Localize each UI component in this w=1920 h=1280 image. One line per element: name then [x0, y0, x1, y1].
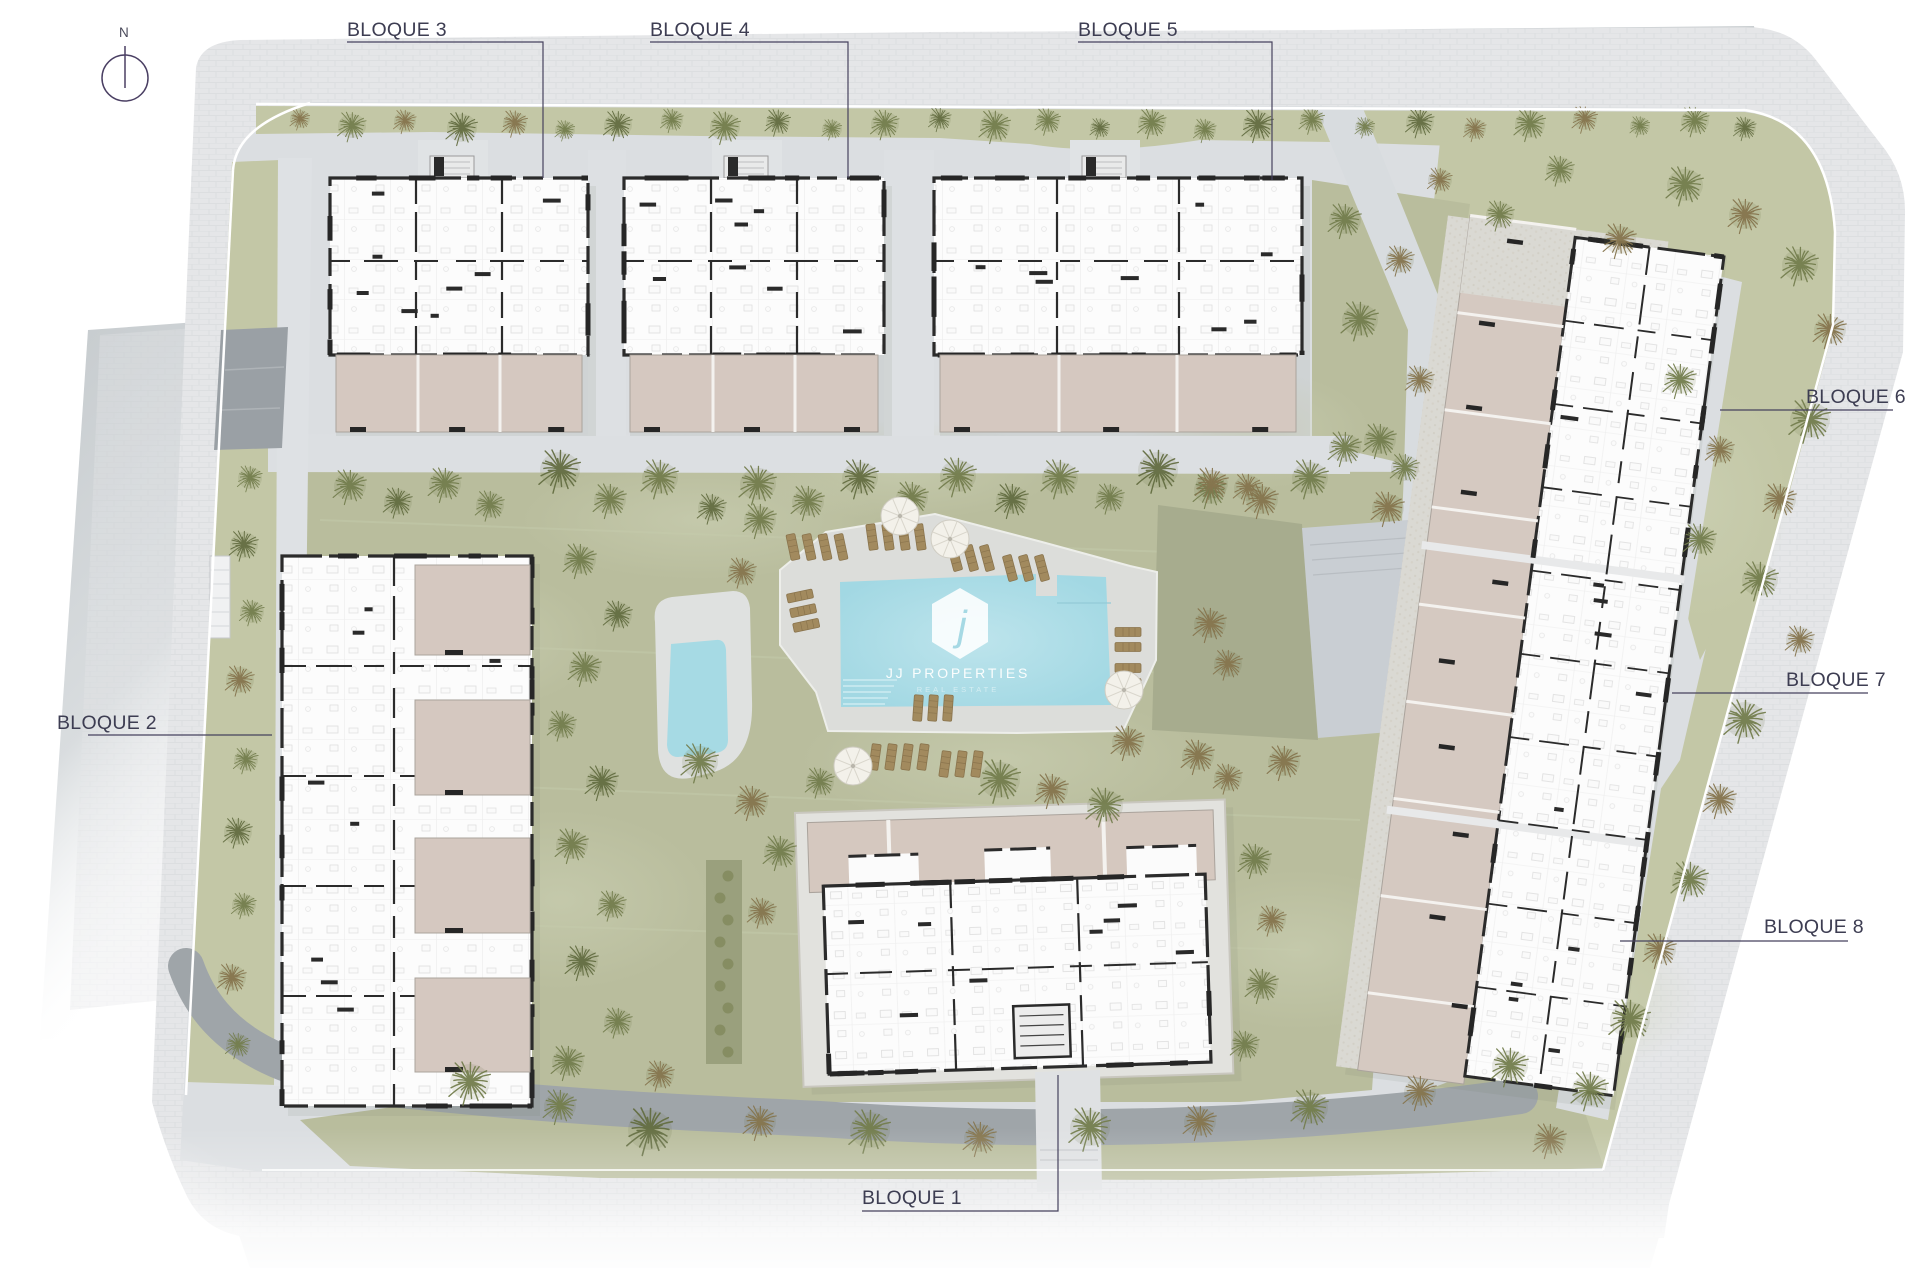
svg-text:BLOQUE 4: BLOQUE 4	[650, 19, 750, 41]
svg-text:BLOQUE 7: BLOQUE 7	[1786, 669, 1886, 691]
svg-text:BLOQUE 5: BLOQUE 5	[1078, 19, 1178, 41]
svg-text:REAL ESTATE: REAL ESTATE	[917, 685, 999, 694]
svg-text:BLOQUE 1: BLOQUE 1	[862, 1187, 962, 1209]
svg-text:N: N	[119, 25, 129, 40]
svg-text:BLOQUE 6: BLOQUE 6	[1806, 386, 1906, 408]
svg-text:BLOQUE 8: BLOQUE 8	[1764, 916, 1864, 938]
svg-text:BLOQUE 3: BLOQUE 3	[347, 19, 447, 41]
svg-text:BLOQUE 2: BLOQUE 2	[57, 712, 157, 734]
svg-text:JJ PROPERTIES: JJ PROPERTIES	[886, 665, 1030, 681]
